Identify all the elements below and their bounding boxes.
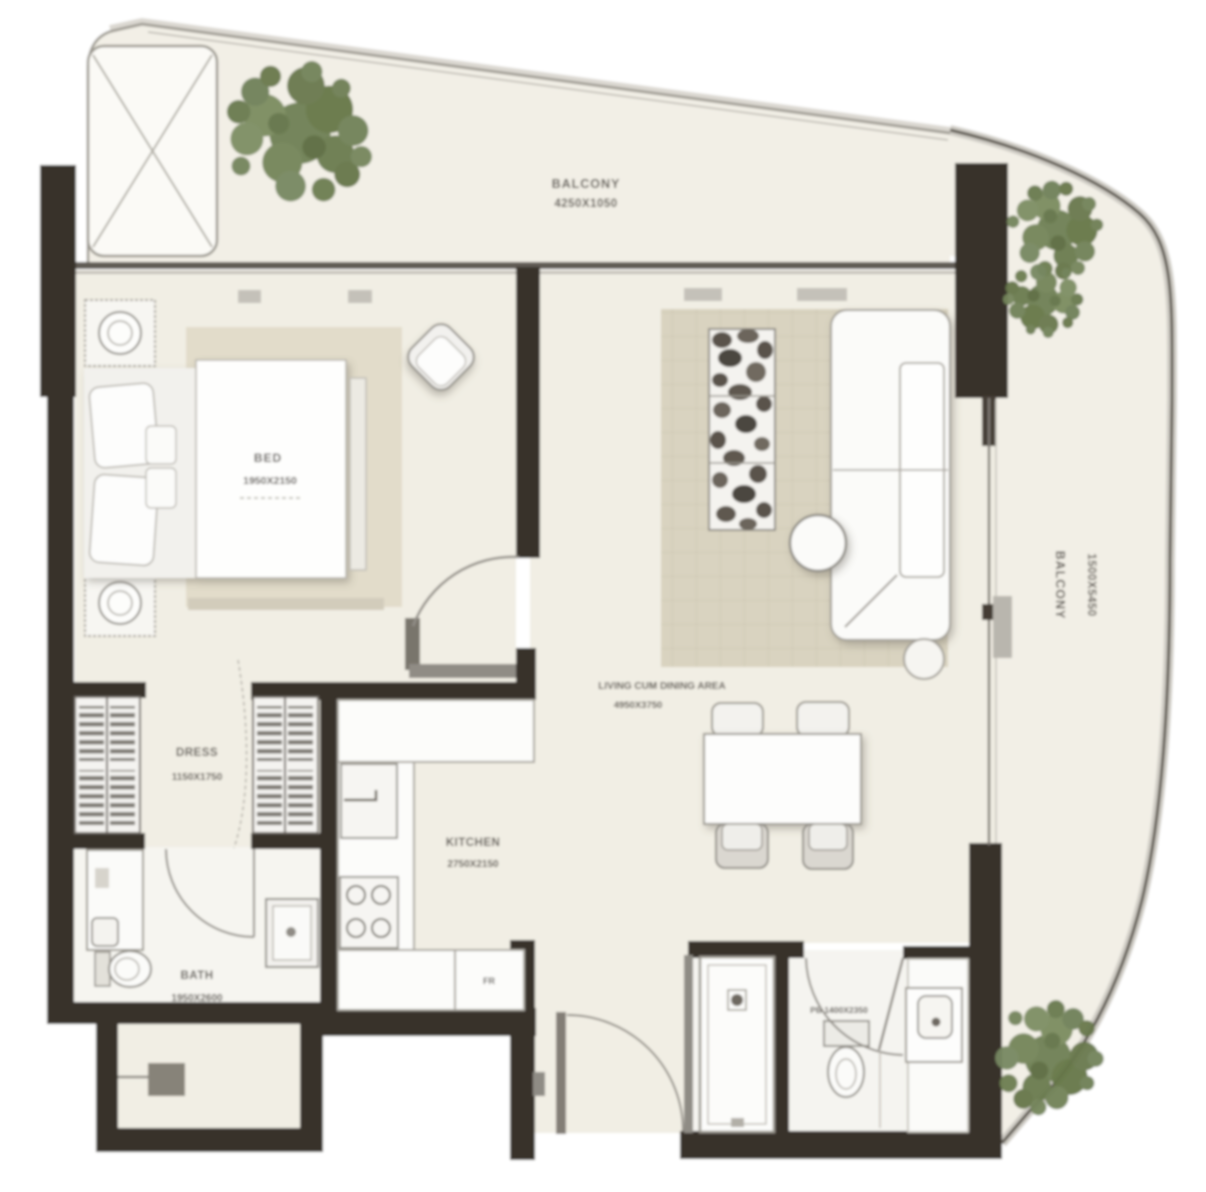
svg-text:LIVING CUM DINING AREA: LIVING CUM DINING AREA <box>598 681 725 692</box>
svg-text:BED: BED <box>254 451 282 465</box>
svg-text:1950X2600: 1950X2600 <box>171 993 223 1004</box>
svg-text:4250X1050: 4250X1050 <box>554 198 617 210</box>
svg-text:BALCONY: BALCONY <box>552 177 621 191</box>
svg-text:2750X2150: 2750X2150 <box>447 859 499 870</box>
svg-text:1150X1750: 1150X1750 <box>172 772 223 783</box>
svg-text:1950X2150: 1950X2150 <box>243 475 297 487</box>
svg-text:DRESS: DRESS <box>176 747 218 759</box>
svg-text:BATH: BATH <box>180 970 213 982</box>
svg-text:4950X3750: 4950X3750 <box>614 700 663 711</box>
svg-text:FR: FR <box>483 976 495 986</box>
svg-text:1500X5450: 1500X5450 <box>1085 553 1097 616</box>
svg-text:BALCONY: BALCONY <box>1053 551 1067 620</box>
svg-text:KITCHEN: KITCHEN <box>446 837 501 849</box>
